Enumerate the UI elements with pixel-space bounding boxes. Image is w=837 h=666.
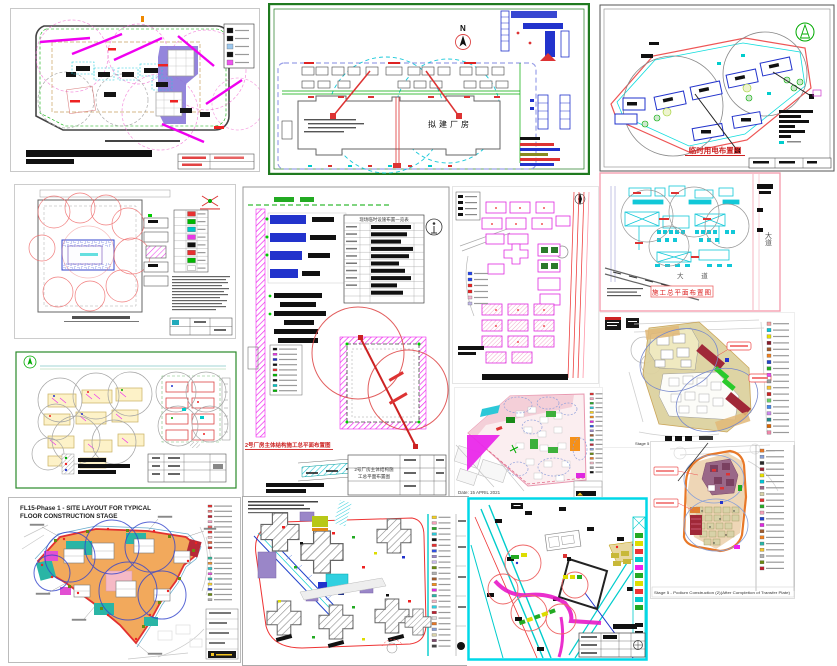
drawing-f-residential-estate-plan[interactable] — [452, 186, 599, 384]
legend-list — [270, 345, 302, 395]
drawing-title: 临时用电布置图 — [689, 145, 742, 155]
drawing-i-residential-clusters-plan[interactable] — [14, 350, 238, 490]
title-block — [579, 633, 645, 657]
drawing-j-triangular-site-plan[interactable]: Date: 15 APRIL 2021 — [454, 387, 603, 500]
title-block — [749, 158, 831, 168]
title-box: 施工总平面布置图 — [651, 286, 713, 297]
drawing-title-bar — [72, 316, 130, 319]
legend-strip-2 — [208, 557, 232, 601]
svg-text:N: N — [460, 24, 466, 33]
site-plan-collage: 拟建厂房 N — [0, 0, 837, 666]
hoarding-fence — [256, 209, 265, 437]
legend-table — [174, 210, 208, 272]
drawing-c-temp-power-plan[interactable]: 临时用电布置图 — [597, 2, 837, 174]
drawing-b-factory-site-plan[interactable]: 拟建厂房 N — [268, 3, 590, 175]
drawing-e-workshop2-plan[interactable]: 现场临时设施布置一览表 — [240, 185, 453, 501]
title-block — [206, 609, 238, 659]
drawing-k-fl15-phase1-plan[interactable]: FL15-Phase 1 - SITE LAYOUT FOR TYPICAL F… — [8, 497, 241, 663]
facility-table: 现场临时设施布置一览表 — [344, 215, 424, 303]
svg-text:现场临时设施布置一览表: 现场临时设施布置一览表 — [359, 216, 409, 223]
building-core — [62, 240, 114, 270]
road-label-bottom: 大 道 — [677, 271, 716, 280]
date-label: Date: 15 APRIL 2021 — [458, 490, 501, 495]
title-block — [148, 454, 226, 482]
drawing-a-tower-site-plan[interactable] — [10, 8, 260, 172]
mini-legend — [224, 24, 254, 68]
drawing-title-line2: FLOOR CONSTRUCTION STAGE — [20, 513, 117, 520]
drawing-title: 2号厂房主体结构施工总平面布置图 — [245, 441, 331, 449]
legend-strip-1 — [208, 505, 232, 549]
drawing-title-bar — [482, 374, 568, 380]
title-block: 2号厂房主体结构施 工总平面布置图 — [348, 455, 446, 495]
drawing-g-general-layout-plan[interactable]: 大 道 施工总平面布置图 大道 — [599, 172, 781, 312]
title-block — [170, 318, 232, 335]
drawing-h-stage5-podium-plan[interactable]: Stage 5 - Podium Construction (2)/After … — [599, 312, 795, 448]
drawing-l-tower-estate-plan[interactable] — [242, 496, 469, 666]
title-block — [574, 481, 602, 498]
drawing-d-structure-stage-plan[interactable] — [14, 184, 236, 339]
drawing-n-stage5-podium-plan-2[interactable]: Stage 5 - Podium Construction (2)(After … — [650, 441, 795, 601]
mini-legend — [456, 192, 480, 220]
drawing-m-road-junction-plan[interactable] — [467, 497, 648, 666]
road-label-vertical: 大道 — [765, 231, 773, 247]
title-block — [178, 154, 254, 169]
svg-text:2号厂房主体结构施: 2号厂房主体结构施 — [354, 466, 394, 473]
drawing-title-line1: FL15-Phase 1 - SITE LAYOUT FOR TYPICAL — [20, 505, 151, 512]
note-redaction — [613, 624, 637, 629]
svg-text:Stage 5 - Podium Construction: Stage 5 - Podium Construction (2)(After … — [654, 590, 791, 595]
building-label: 拟建厂房 — [428, 119, 472, 129]
svg-text:施工总平面布置图: 施工总平面布置图 — [652, 288, 712, 297]
svg-text:工总平面布置图: 工总平面布置图 — [358, 473, 391, 480]
dark-red-zone — [690, 515, 702, 535]
